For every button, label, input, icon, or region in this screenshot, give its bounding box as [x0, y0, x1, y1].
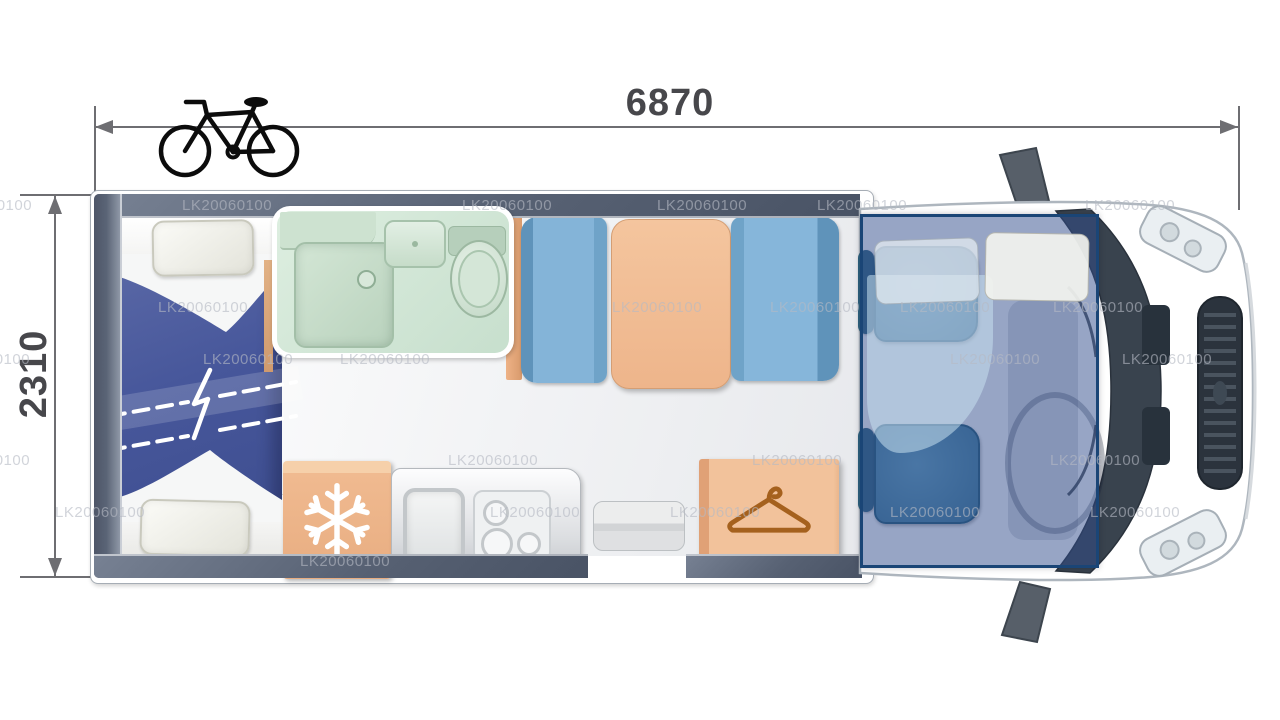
dropdown-bed-pillow-right — [984, 232, 1089, 302]
dimension-left-arrow-up — [48, 196, 62, 214]
washbasin — [384, 220, 446, 268]
shower-drain — [357, 270, 376, 289]
length-dimension-label: 6870 — [595, 82, 745, 125]
dinette-table — [611, 219, 731, 389]
rear-bed-bottom-pillow — [139, 499, 250, 558]
width-dimension-label: 2310 — [12, 324, 56, 424]
wall-bottom-left-of-door — [94, 554, 588, 578]
bathroom — [272, 206, 514, 358]
dinette-right-bench — [731, 217, 839, 381]
floorplan-canvas: 6870 2310 — [0, 0, 1280, 720]
wardrobe — [699, 459, 839, 563]
snowflake-icon — [298, 481, 376, 559]
hanger-icon — [721, 479, 817, 543]
kitchen-counter — [391, 468, 581, 568]
kitchen-sink — [403, 488, 465, 564]
hood-vent — [1142, 305, 1170, 365]
wall-bottom-right-of-door — [686, 554, 862, 578]
washbasin-drain — [412, 241, 418, 247]
dropdown-bed-overlay — [860, 214, 1099, 568]
mirror-top — [1000, 148, 1049, 208]
hood-vent — [1142, 407, 1170, 465]
break-line-symbol — [108, 358, 298, 453]
shower-tray — [294, 242, 394, 348]
toilet-seat — [458, 250, 500, 308]
entry-step — [593, 501, 685, 551]
rear-bed-top-pillow — [152, 219, 255, 277]
hob — [473, 490, 551, 562]
dropdown-bed-pillow-left — [874, 237, 980, 305]
grille-badge — [1213, 381, 1227, 405]
hob-burner — [517, 532, 541, 556]
mirror-bottom — [1002, 582, 1050, 642]
watermark-text: LK20060100 — [0, 452, 30, 469]
wall-left — [94, 194, 122, 578]
dinette-left-bench — [521, 217, 607, 383]
watermark-text: LK20060100 — [0, 197, 32, 214]
dimension-left-arrow-down — [48, 558, 62, 576]
hob-burner — [483, 500, 509, 526]
bicycle-icon — [155, 85, 305, 180]
dimension-top-arrow-left — [95, 120, 113, 134]
dimension-left-bottom-tick — [20, 576, 92, 578]
dimension-top-arrow-right — [1220, 120, 1238, 134]
